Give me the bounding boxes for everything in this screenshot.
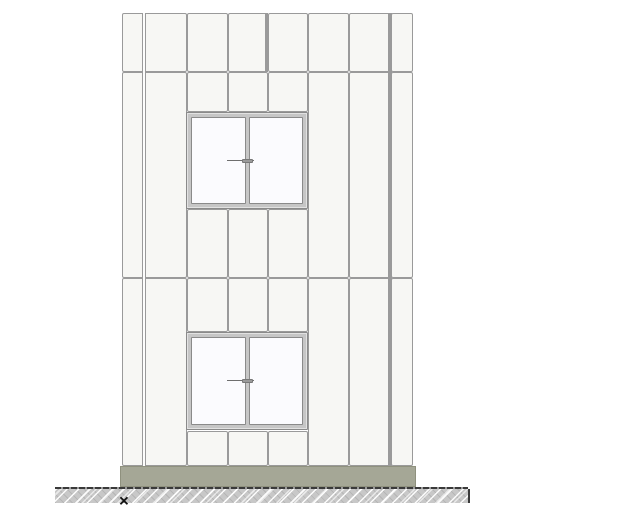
grade-line — [55, 487, 468, 489]
window-pane-left — [191, 117, 246, 204]
window-pane-right — [249, 337, 304, 425]
window-handle-grip-icon — [242, 159, 253, 163]
origin-marker-icon: ✕ — [119, 495, 130, 508]
ground-hatch-band — [55, 489, 470, 503]
window-handle-grip-icon — [242, 379, 253, 383]
window-pane-left — [191, 337, 246, 425]
windows-layer — [0, 0, 640, 508]
window-pane-right — [249, 117, 304, 204]
building-base-plinth — [120, 466, 416, 487]
elevation-canvas: ✕ — [0, 0, 640, 508]
upper-window — [186, 112, 308, 209]
lower-window — [186, 332, 308, 430]
